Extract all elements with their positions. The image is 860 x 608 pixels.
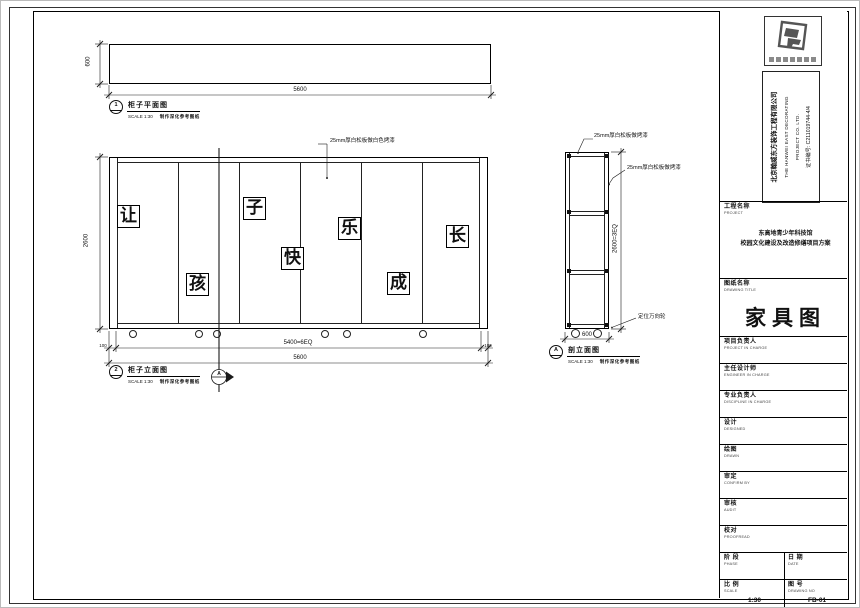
date-label-en: DATE [788, 562, 803, 567]
elevation-dim-left: 100 [97, 342, 109, 349]
drawing-no-value: FB-01 [808, 597, 826, 604]
elevation-view-note: 制作深化参考图纸 [160, 379, 200, 385]
char-tile: 快 [281, 247, 304, 270]
side-right-post [604, 153, 605, 328]
elevation-right-post [479, 158, 480, 328]
row-label-cn: 主任设计师 [724, 366, 847, 373]
company-name-en2: PROJECT CO. LTD. [792, 72, 803, 202]
plan-dim-width: 5600 [280, 87, 320, 94]
drawing-sheet: 让 孩 子 快 乐 成 长 [0, 0, 860, 608]
side-dim-height: 2600=3EQ [613, 219, 620, 259]
caster-wheel [321, 330, 329, 338]
side-view [565, 152, 609, 329]
char-tile: 长 [446, 225, 469, 248]
row-label-en: ENGINEER IN CHARGE [724, 373, 847, 378]
elevation-dim-right: 100 [482, 342, 494, 349]
project-label-cn: 工程名称 [724, 204, 847, 211]
project-name-section: 工程名称 PROJECT 东高地青少年科技馆 校园文化建设及改造修缮项目方案 [720, 201, 847, 278]
side-shelf [569, 270, 605, 271]
shelf-connector [605, 323, 609, 327]
signature-row: 设计 DESIGNED [720, 417, 847, 444]
row-label-en: DRAWN [724, 454, 847, 459]
elevation-view: 让 孩 子 快 乐 成 长 [109, 157, 488, 329]
side-shelf [569, 211, 605, 212]
title-block: 北京翰威东方装饰工程有限公司 THE HANWEI EAST DECORATIN… [719, 11, 847, 598]
char-tile: 乐 [338, 217, 361, 240]
panel-divider [422, 162, 423, 324]
project-name-line2: 校园文化建设及改造修缮项目方案 [724, 239, 847, 249]
drawing-title-section: 图纸名称 DRAWING TITLE 家具图 [720, 278, 847, 336]
elevation-material-leader: 25mm厚白松板做白色烤漆 [330, 138, 395, 144]
elevation-view-title: 柜子立面图 [127, 365, 200, 377]
shelf-connector [605, 210, 609, 214]
phase-label-en: PHASE [724, 562, 739, 567]
char-tile: 成 [387, 272, 410, 295]
drawing-title-label-cn: 图纸名称 [724, 281, 847, 288]
panel-divider [178, 162, 179, 324]
company-name-cn: 北京翰威东方装饰工程有限公司 [768, 72, 781, 202]
elevation-dim-total: 5600 [278, 355, 322, 362]
project-name-line1: 东高地青少年科技馆 [724, 229, 847, 239]
plan-view-title: 柜子平面图 [127, 100, 200, 112]
plan-view-tag: 1 [109, 100, 123, 114]
plan-view-scale: SCALE 1:30 [128, 114, 153, 120]
signature-row: 项目负责人 PROJECT IN CHARGE [720, 336, 847, 363]
phase-label-cn: 阶 段 [724, 555, 739, 562]
signature-row: 审核 AUDIT [720, 498, 847, 525]
signature-row: 主任设计师 ENGINEER IN CHARGE [720, 363, 847, 390]
drawing-no-label-cn: 图 号 [788, 582, 815, 589]
row-label-en: AUDIT [724, 508, 847, 513]
char-tile: 让 [117, 205, 140, 228]
row-label-cn: 绘图 [724, 447, 847, 454]
drawing-title: 家具图 [724, 302, 847, 332]
drawing-title-label-en: DRAWING TITLE [724, 288, 847, 293]
shelf-connector [605, 154, 609, 158]
scale-value: 1:30 [748, 597, 761, 604]
panel-divider [239, 162, 240, 324]
logo-caption [769, 57, 817, 62]
char-tile: 子 [243, 197, 266, 220]
elevation-top-rail [117, 162, 480, 163]
signature-row: 校对 PROOFREAD [720, 525, 847, 552]
panel-divider [300, 162, 301, 324]
section-marker-letter: A [215, 371, 223, 377]
shelf-connector [567, 323, 571, 327]
elevation-view-label: 2 柜子立面图 SCALE 1:30 制作深化参考图纸 [109, 365, 200, 385]
phase-date-row: 阶 段 PHASE 日 期 DATE [720, 552, 847, 579]
date-label-cn: 日 期 [788, 555, 803, 562]
side-view-label: A 剖立面图 SCALE 1:30 制作深化参考图纸 [549, 345, 640, 365]
elevation-dim-height: 2600 [84, 233, 91, 249]
panel-divider [361, 162, 362, 324]
row-label-en: PROOFREAD [724, 535, 847, 540]
caster-wheel [129, 330, 137, 338]
row-label-en: CONFIRM BY [724, 481, 847, 486]
row-label-cn: 设计 [724, 420, 847, 427]
side-caster-leader: 定位万向轮 [638, 314, 666, 320]
elevation-view-scale: SCALE 1:30 [128, 379, 153, 385]
caster-wheel [213, 330, 221, 338]
scale-label-en: SCALE [724, 589, 739, 594]
shelf-connector [567, 269, 571, 273]
company-info-box: 北京翰威东方装饰工程有限公司 THE HANWEI EAST DECORATIN… [762, 71, 820, 203]
plan-view-rect [109, 44, 491, 84]
caster-wheel [195, 330, 203, 338]
row-label-en: DISCIPLINE IN CHARGE [724, 400, 847, 405]
signature-row: 专业负责人 DISCIPLINE IN CHARGE [720, 390, 847, 417]
row-label-cn: 校对 [724, 528, 847, 535]
company-certificate: 证书编号: C211019744-4/4 [803, 72, 815, 202]
shelf-connector [605, 269, 609, 273]
scale-label-cn: 比 例 [724, 582, 739, 589]
company-logo [764, 16, 822, 66]
side-top-rail [569, 156, 605, 157]
elevation-dim-mid: 5400=6EQ [268, 340, 328, 347]
project-label-en: PROJECT [724, 211, 847, 216]
plan-view-note: 制作深化参考图纸 [160, 114, 200, 120]
elevation-left-post [117, 158, 118, 328]
row-label-en: PROJECT IN CHARGE [724, 346, 847, 351]
elevation-bottom-rail [117, 323, 480, 324]
scale-number-row: 比 例 SCALE 1:30 图 号 DRAWING NO FB-01 [720, 579, 847, 608]
row-label-cn: 项目负责人 [724, 339, 847, 346]
side-material-leader-side: 25mm厚白松板做烤漆 [627, 165, 681, 171]
row-label-cn: 专业负责人 [724, 393, 847, 400]
side-material-leader-top: 25mm厚白松板做烤漆 [594, 133, 648, 139]
signature-row: 审定 CONFIRM BY [720, 471, 847, 498]
char-tile: 孩 [186, 273, 209, 296]
side-shelf [569, 274, 605, 275]
row-label-en: DESIGNED [724, 427, 847, 432]
signature-row: 绘图 DRAWN [720, 444, 847, 471]
side-bottom-rail [569, 324, 605, 325]
side-dim-width: 600 [573, 332, 601, 339]
side-view-title: 剖立面图 [567, 345, 640, 357]
side-view-note: 制作深化参考图纸 [600, 359, 640, 365]
plan-view-label: 1 柜子平面图 SCALE 1:30 制作深化参考图纸 [109, 100, 200, 120]
drawing-no-label-en: DRAWING NO [788, 589, 815, 594]
caster-wheel [419, 330, 427, 338]
side-view-tag: A [549, 345, 563, 359]
row-label-cn: 审定 [724, 474, 847, 481]
side-view-scale: SCALE 1:30 [568, 359, 593, 365]
shelf-connector [567, 210, 571, 214]
company-name-en1: THE HANWEI EAST DECORATING [781, 72, 792, 202]
row-label-cn: 审核 [724, 501, 847, 508]
side-shelf [569, 215, 605, 216]
elevation-view-tag: 2 [109, 365, 123, 379]
caster-wheel [343, 330, 351, 338]
shelf-connector [567, 154, 571, 158]
side-left-post [569, 153, 570, 328]
plan-dim-height: 600 [86, 54, 93, 70]
